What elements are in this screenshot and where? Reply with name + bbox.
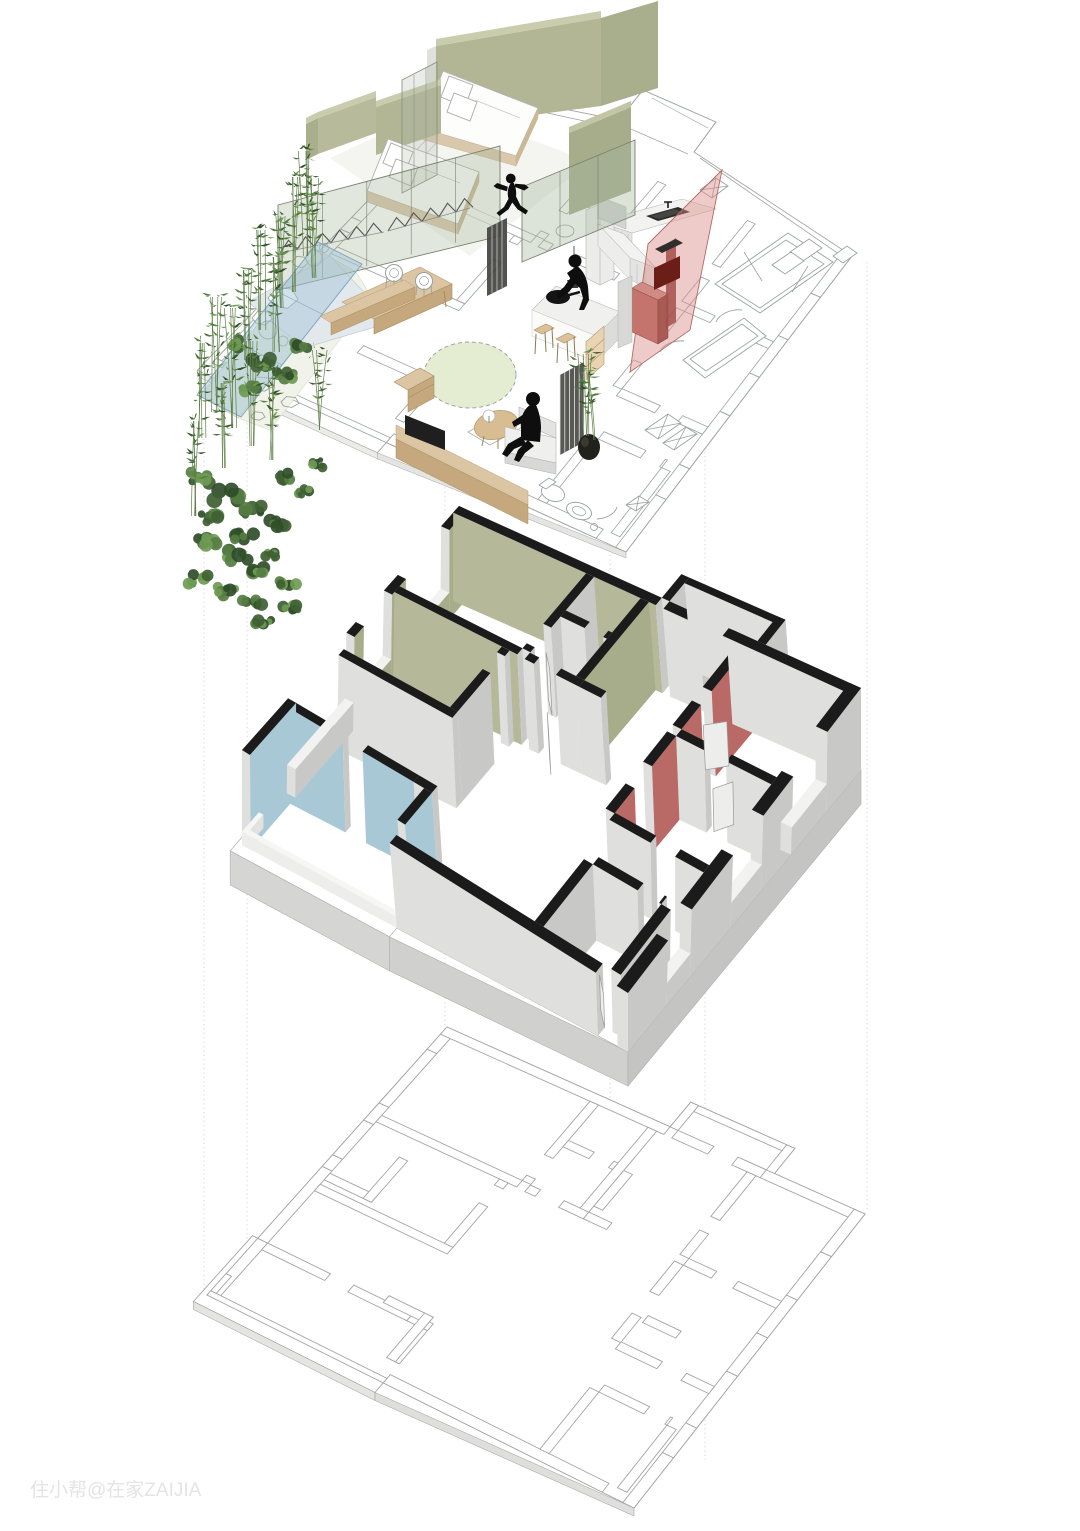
svg-text:住小帮@在家ZAIJIA: 住小帮@在家ZAIJIA (30, 1479, 202, 1501)
